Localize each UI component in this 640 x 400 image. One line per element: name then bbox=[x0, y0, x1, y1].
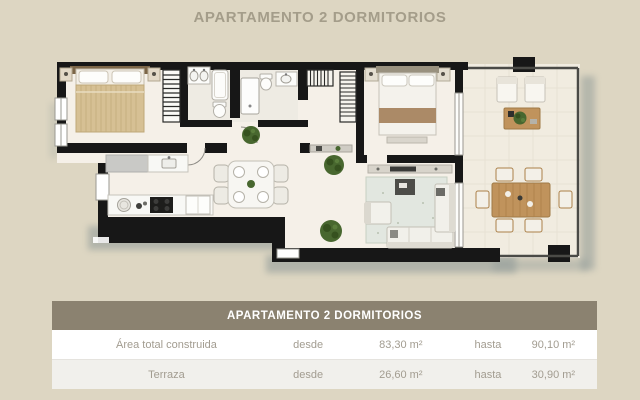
table-row: Terraza desde 26,60 m² hasta 30,90 m² bbox=[52, 359, 597, 389]
floor-plan-drawing bbox=[38, 48, 613, 293]
from-value: 26,60 m² bbox=[335, 369, 466, 381]
cooktop-icon bbox=[150, 197, 173, 213]
chair-icon bbox=[525, 168, 542, 181]
dining-table-icon bbox=[228, 161, 274, 208]
from-word: desde bbox=[281, 339, 336, 351]
chair-icon bbox=[496, 168, 513, 181]
pot-icon bbox=[118, 199, 131, 212]
double-bed-icon bbox=[76, 69, 144, 132]
page-title: APARTAMENTO 2 DORMITORIOS bbox=[0, 9, 640, 26]
chair-icon bbox=[559, 191, 572, 208]
row-label: Terraza bbox=[52, 369, 281, 381]
coffee-table bbox=[395, 179, 415, 195]
chair-icon bbox=[476, 191, 489, 208]
chair-icon bbox=[273, 165, 288, 182]
plant-icon bbox=[242, 126, 260, 144]
chair-icon bbox=[214, 187, 229, 204]
double-bed-icon bbox=[376, 66, 439, 143]
chair-icon bbox=[496, 219, 513, 232]
floor-plan bbox=[38, 48, 613, 293]
plant-icon bbox=[514, 112, 527, 125]
armchair-icon bbox=[365, 202, 391, 224]
chair-icon bbox=[525, 219, 542, 232]
spec-table: APARTAMENTO 2 DORMITORIOS Área total con… bbox=[52, 301, 597, 389]
from-value: 83,30 m² bbox=[335, 339, 466, 351]
spec-table-header: APARTAMENTO 2 DORMITORIOS bbox=[52, 301, 597, 330]
chair-icon bbox=[214, 165, 229, 182]
plant-icon bbox=[324, 155, 344, 175]
to-value: 30,90 m² bbox=[510, 369, 597, 381]
lounge-chair-icon bbox=[525, 77, 545, 102]
closet-icon bbox=[340, 72, 356, 122]
from-word: desde bbox=[281, 369, 336, 381]
row-label: Área total construida bbox=[52, 339, 281, 351]
bathtub-icon bbox=[212, 70, 228, 100]
tv-icon bbox=[390, 167, 416, 172]
to-value: 90,10 m² bbox=[510, 339, 597, 351]
closet-icon bbox=[307, 70, 333, 86]
toilet-icon bbox=[213, 102, 226, 118]
toilet-icon bbox=[260, 74, 272, 90]
plant-icon bbox=[320, 220, 342, 242]
chair-icon bbox=[273, 187, 288, 204]
to-word: hasta bbox=[466, 369, 510, 381]
console-shelf bbox=[310, 145, 352, 152]
shower-icon bbox=[241, 78, 259, 114]
tv-console bbox=[368, 165, 452, 173]
lounge-chair-icon bbox=[497, 77, 517, 102]
wardrobe-icon bbox=[163, 70, 180, 122]
kitchen-counter bbox=[106, 155, 148, 172]
table-row: Área total construida desde 83,30 m² has… bbox=[52, 330, 597, 359]
to-word: hasta bbox=[466, 339, 510, 351]
outdoor-coffee-table bbox=[504, 108, 540, 129]
